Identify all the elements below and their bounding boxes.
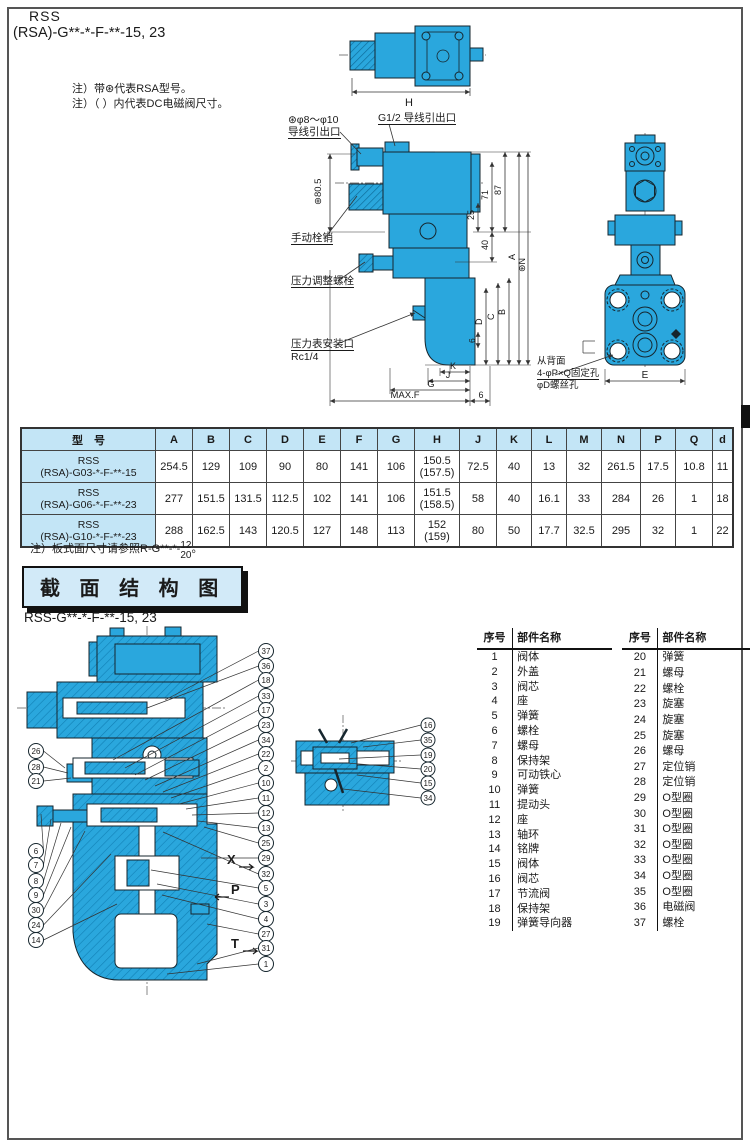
part-number: 21 [622,666,658,682]
part-number: 3 [477,680,513,695]
dim-6-bottom: 6 [478,390,483,400]
dim-D: D [474,318,484,325]
dim-value-cell: 17.7 [532,515,567,548]
callout-number: 28 [32,763,41,772]
callout-number: 34 [424,794,433,803]
parts-row: 34O型圈 [622,869,750,885]
dim-row: RSS (RSA)-G06-*-F-**-23277151.5131.5112.… [21,483,733,515]
callout-number: 35 [424,736,433,745]
dim-value-cell: 131.5 [230,483,267,515]
callout-leader [44,827,72,895]
part-number: 7 [477,739,513,754]
dim-value-cell: 58 [460,483,497,515]
dim-C: C [486,313,496,320]
dim-value-cell: 109 [230,451,267,483]
part-name: 轴环 [513,828,613,843]
parts-row: 29O型圈 [622,791,750,807]
parts-col-no-2: 序号 [622,628,658,649]
part-number: 34 [622,869,658,885]
callout-number: 25 [262,839,271,848]
part-name: O型圈 [658,822,750,838]
callout-number: 2 [264,764,269,773]
callout-number: 4 [264,915,269,924]
parts-table-right: 序号 部件名称 20弹簧21螺母22螺栓23旋塞24旋塞25旋塞26螺母27定位… [622,628,750,931]
parts-row: 10弹簧 [477,783,612,798]
part-name: 阀体 [513,649,613,665]
parts-row: 36电磁阀 [622,900,750,916]
callout-number: 14 [32,936,41,945]
part-name: 螺栓 [513,724,613,739]
dim-value-cell: 143 [230,515,267,548]
parts-row: 20弹簧 [622,649,750,666]
parts-table-left: 序号 部件名称 1阀体2外盖3阀芯4座5弹簧6螺栓7螺母8保持架9可动铁心10弹… [477,628,612,931]
dim-value-cell: 112.5 [267,483,304,515]
parts-row: 8保持架 [477,754,612,769]
dim-A: A [507,254,517,260]
label-back-line3: φD螺丝孔 [537,380,599,392]
part-name: 弹簧导向器 [513,916,613,931]
callout-number: 37 [262,647,271,656]
part-number: 6 [477,724,513,739]
callout-leader [351,725,421,743]
callout-number: 18 [262,676,271,685]
part-name: 保持架 [513,754,613,769]
dim-model-cell: RSS (RSA)-G03-*-F-**-15 [21,451,156,483]
callout-number: 22 [262,750,271,759]
parts-row: 6螺栓 [477,724,612,739]
dim-J: J [446,370,451,380]
part-number: 35 [622,884,658,900]
part-name: 阀芯 [513,872,613,887]
dim-header: E [304,428,341,451]
part-number: 33 [622,853,658,869]
label-gauge-port-line1: 压力表安装口 [291,338,354,351]
callout-number: 13 [262,824,271,833]
callout-number: 6 [34,847,39,856]
parts-row: 33O型圈 [622,853,750,869]
part-number: 30 [622,806,658,822]
dim-header: D [267,428,304,451]
label-back-face: 从背面 4-φP×Q固定孔 φD螺丝孔 [537,356,599,392]
model-code: (RSA)-G**-*-F-**-15, 23 [13,25,165,41]
callout-number: 16 [424,721,433,730]
callout-number: 3 [264,900,269,909]
parts-row: 15阀体 [477,857,612,872]
callout-number: 26 [32,747,41,756]
part-number: 31 [622,822,658,838]
parts-row: 31O型圈 [622,822,750,838]
dim-value-cell: 32 [641,515,676,548]
dim-header: d [713,428,734,451]
front-view-drawing: ⊛80.5 25 71 87 40 A ⊛N B C D 6 K [285,110,537,417]
part-name: 电磁阀 [658,900,750,916]
page-edge-mark [741,405,750,428]
dim-value-cell: 295 [602,515,641,548]
dim-header: H [415,428,460,451]
parts-row: 16阀芯 [477,872,612,887]
callout-leader [44,751,66,768]
part-name: 弹簧 [658,649,750,666]
dim-6-side: 6 [467,338,477,343]
dim-87: 87 [493,185,503,195]
part-number: 23 [622,697,658,713]
callout-number: 31 [262,944,271,953]
part-name: 螺母 [658,744,750,760]
callout-number: 10 [262,779,271,788]
part-number: 18 [477,902,513,917]
dim-header: M [567,428,602,451]
parts-col-name: 部件名称 [513,628,613,649]
callout-number: 7 [34,861,39,870]
callout-number: 34 [262,736,271,745]
dim-header: P [641,428,676,451]
dim-header: L [532,428,567,451]
parts-row: 22螺栓 [622,681,750,697]
label-back-line1: 从背面 [537,356,599,368]
dim-25: 25 [466,210,476,220]
parts-row: 27定位销 [622,759,750,775]
parts-row: 30O型圈 [622,806,750,822]
dim-header: J [460,428,497,451]
part-name: 保持架 [513,902,613,917]
note-2: 注）（ ）内代表DC电磁阀尺寸。 [72,97,228,112]
parts-row: 19弹簧导向器 [477,916,612,931]
dim-K: K [450,361,456,371]
parts-row: 12座 [477,813,612,828]
part-number: 26 [622,744,658,760]
parts-row: 13轴环 [477,828,612,843]
callout-number: 24 [32,921,41,930]
dim-N: ⊛N [517,258,527,272]
dim-value-cell: 1 [676,483,713,515]
callout-number: 1 [264,960,269,969]
callout-number: 36 [262,662,271,671]
dim-value-cell: 102 [304,483,341,515]
part-name: 座 [513,813,613,828]
parts-row: 14铭牌 [477,842,612,857]
parts-row: 4座 [477,694,612,709]
callout-leader [44,823,62,881]
label-lead-wire-star-line2: 导线引出口 [288,126,341,139]
dim-value-cell: 22 [713,515,734,548]
parts-row: 1阀体 [477,649,612,665]
dim-value-cell: 152 (159) [415,515,460,548]
part-name: O型圈 [658,869,750,885]
label-pressure-adjust: 压力调整螺栓 [291,275,354,288]
dim-value-cell: 32.5 [567,515,602,548]
parts-row: 3阀芯 [477,680,612,695]
callout-number: 19 [424,751,433,760]
parts-col-no: 序号 [477,628,513,649]
dim-B: B [497,309,507,315]
dim-header: Q [676,428,713,451]
dim-value-cell: 90 [267,451,304,483]
dim-header: N [602,428,641,451]
parts-row: 7螺母 [477,739,612,754]
catalog-page: RSS (RSA)-G**-*-F-**-15, 23 注）带⊛代表RSA型号。… [0,0,750,1147]
part-name: 座 [513,694,613,709]
part-name: 外盖 [513,665,613,680]
part-name: 定位销 [658,759,750,775]
dim-value-cell: 18 [713,483,734,515]
dim-value-cell: 254.5 [156,451,193,483]
dim-value-cell: 1 [676,515,713,548]
label-lead-wire-g12: G1/2 导线引出口 [378,112,456,125]
label-gauge-port-line2: Rc1/4 [291,351,354,363]
parts-row: 37螺栓 [622,915,750,931]
parts-row: 5弹簧 [477,709,612,724]
part-number: 15 [477,857,513,872]
port-X-label: X [227,852,236,867]
dim-value-cell: 72.5 [460,451,497,483]
dim-80-5: ⊛80.5 [313,179,324,205]
part-number: 10 [477,783,513,798]
dimension-table: 型 号ABCDEFGHJKLMNPQdRSS (RSA)-G03-*-F-**-… [20,427,734,548]
callout-number: 11 [262,794,271,803]
parts-row: 11提动头 [477,798,612,813]
dim-value-cell: 129 [193,451,230,483]
label-gauge-port: 压力表安装口 Rc1/4 [291,338,354,363]
callout-number: 9 [34,891,39,900]
part-number: 1 [477,649,513,665]
side-view-drawing: E [553,123,747,395]
dim-value-cell: 32 [567,451,602,483]
callout-number: 32 [262,870,271,879]
part-number: 37 [622,915,658,931]
part-number: 28 [622,775,658,791]
part-name: 螺母 [513,739,613,754]
dim-40: 40 [480,240,490,250]
dim-value-cell: 151.5 [193,483,230,515]
part-name: 提动头 [513,798,613,813]
part-name: 螺栓 [658,915,750,931]
dim-value-cell: 141 [341,483,378,515]
dim-value-cell: 80 [304,451,341,483]
part-name: O型圈 [658,884,750,900]
part-name: 弹簧 [513,709,613,724]
parts-row: 18保持架 [477,902,612,917]
table-note-prefix: 注）板式面尺寸请参照R-G**-*- [30,543,180,555]
dim-value-cell: 40 [497,451,532,483]
note-1: 注）带⊛代表RSA型号。 [72,82,192,97]
part-name: O型圈 [658,837,750,853]
callout-number: 27 [262,930,271,939]
part-number: 20 [622,649,658,666]
dim-value-cell: 10.8 [676,451,713,483]
callout-number: 30 [32,906,41,915]
dim-E: E [642,370,649,381]
small-section-drawing: 163519201534 [291,713,446,815]
callout-number: 29 [262,854,271,863]
dim-value-cell: 277 [156,483,193,515]
part-name: 螺母 [658,666,750,682]
callout-number: 23 [262,721,271,730]
dim-MAXF: MAX.F [390,390,419,401]
part-name: 定位销 [658,775,750,791]
dim-value-cell: 148 [341,515,378,548]
parts-row: 32O型圈 [622,837,750,853]
dim-value-cell: 13 [532,451,567,483]
label-manual-pin: 手动栓销 [291,232,333,245]
dim-header: C [230,428,267,451]
part-number: 8 [477,754,513,769]
port-T-label: T [231,936,239,951]
part-number: 16 [477,872,513,887]
part-name: 可动铁心 [513,768,613,783]
part-name: 阀芯 [513,680,613,695]
dim-value-cell: 33 [567,483,602,515]
callout-number: 8 [34,877,39,886]
dim-header: F [341,428,378,451]
label-back-line2: 4-φP×Q固定孔 [537,368,599,381]
dim-value-cell: 40 [497,483,532,515]
table-note-fraction: 1220 [180,541,191,561]
part-number: 24 [622,712,658,728]
dim-value-cell: 261.5 [602,451,641,483]
part-number: 17 [477,887,513,902]
parts-row: 17节流阀 [477,887,612,902]
part-number: 29 [622,791,658,807]
parts-row: 35O型圈 [622,884,750,900]
dim-H-label: H [405,97,413,109]
part-number: 36 [622,900,658,916]
parts-col-name-2: 部件名称 [658,628,750,649]
callout-number: 33 [262,692,271,701]
part-number: 19 [477,916,513,931]
part-name: 阀体 [513,857,613,872]
table-note-suffix: 。 [191,543,202,555]
callout-number: 5 [264,884,269,893]
dim-value-cell: 11 [713,451,734,483]
dim-value-cell: 127 [304,515,341,548]
parts-row: 25旋塞 [622,728,750,744]
dim-value-cell: 151.5 (158.5) [415,483,460,515]
section-header: 截 面 结 构 图 [22,566,243,608]
parts-row: 9可动铁心 [477,768,612,783]
dim-71: 71 [480,190,490,200]
parts-row: 23旋塞 [622,697,750,713]
label-lead-wire-star-line1: ⊛φ8～φ10 [288,114,341,126]
part-number: 4 [477,694,513,709]
dim-model-cell: RSS (RSA)-G06-*-F-**-23 [21,483,156,515]
dim-value-cell: 141 [341,451,378,483]
part-name: O型圈 [658,853,750,869]
callout-number: 21 [32,777,41,786]
dim-value-cell: 106 [378,483,415,515]
parts-row: 26螺母 [622,744,750,760]
part-name: 旋塞 [658,697,750,713]
part-number: 5 [477,709,513,724]
parts-row: 2外盖 [477,665,612,680]
dim-value-cell: 113 [378,515,415,548]
dim-header: K [497,428,532,451]
part-name: 旋塞 [658,728,750,744]
part-name: 弹簧 [513,783,613,798]
part-number: 27 [622,759,658,775]
part-number: 25 [622,728,658,744]
part-number: 2 [477,665,513,680]
callout-number: 20 [424,765,433,774]
dim-value-cell: 120.5 [267,515,304,548]
dim-value-cell: 26 [641,483,676,515]
part-number: 12 [477,813,513,828]
page-title: RSS [29,8,61,24]
callout-number: 17 [262,706,271,715]
part-name: 铭牌 [513,842,613,857]
main-section-drawing: X P T 3736183317233422210111213252932534… [15,618,305,1003]
callout-number: 15 [424,779,433,788]
parts-row: 24旋塞 [622,712,750,728]
part-number: 11 [477,798,513,813]
top-view-drawing: H [335,18,490,110]
part-number: 9 [477,768,513,783]
parts-row: 21螺母 [622,666,750,682]
dim-value-cell: 284 [602,483,641,515]
part-number: 32 [622,837,658,853]
dim-value-cell: 17.5 [641,451,676,483]
parts-list: 序号 部件名称 1阀体2外盖3阀芯4座5弹簧6螺栓7螺母8保持架9可动铁心10弹… [477,628,750,931]
label-lead-wire-star: ⊛φ8～φ10 导线引出口 [288,114,341,139]
dim-value-cell: 50 [497,515,532,548]
table-note: 注）板式面尺寸请参照R-G**-*-1220。 [30,540,202,561]
part-name: O型圈 [658,806,750,822]
dim-value-cell: 80 [460,515,497,548]
dim-value-cell: 150.5 (157.5) [415,451,460,483]
part-name: 节流阀 [513,887,613,902]
part-number: 22 [622,681,658,697]
dim-G: G [427,379,434,389]
part-name: O型圈 [658,791,750,807]
part-name: 旋塞 [658,712,750,728]
callout-number: 12 [262,809,271,818]
dim-value-cell: 16.1 [532,483,567,515]
dim-header: B [193,428,230,451]
dim-header: G [378,428,415,451]
dim-row: RSS (RSA)-G03-*-F-**-15254.5129109908014… [21,451,733,483]
fraction-bottom: 20 [180,551,191,561]
dim-header-model: 型 号 [21,428,156,451]
part-number: 13 [477,828,513,843]
part-number: 14 [477,842,513,857]
dim-value-cell: 106 [378,451,415,483]
dim-header: A [156,428,193,451]
parts-row: 28定位销 [622,775,750,791]
part-name: 螺栓 [658,681,750,697]
